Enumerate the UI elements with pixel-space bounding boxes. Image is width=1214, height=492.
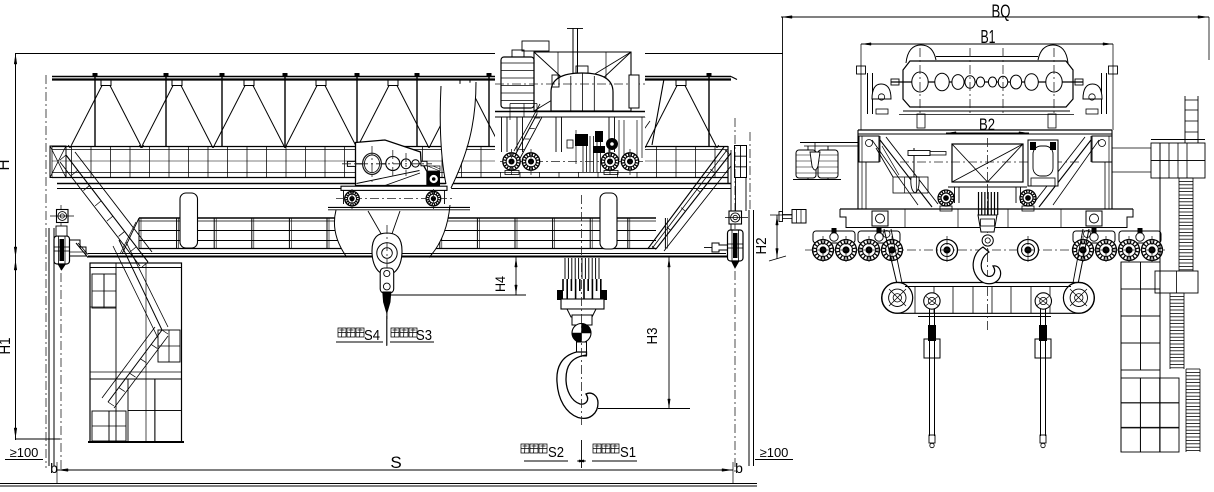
svg-text:H1: H1 <box>0 337 14 354</box>
svg-text:S3: S3 <box>416 327 432 344</box>
svg-text:S1: S1 <box>620 444 636 461</box>
svg-text:≥100: ≥100 <box>760 445 789 460</box>
svg-text:H2: H2 <box>753 238 770 255</box>
svg-text:S: S <box>390 453 401 472</box>
svg-text:BQ: BQ <box>992 2 1011 22</box>
svg-text:b: b <box>735 460 743 476</box>
svg-text:H: H <box>0 160 13 171</box>
svg-text:H3: H3 <box>644 328 661 345</box>
svg-text:S4: S4 <box>364 327 380 344</box>
svg-text:≥100: ≥100 <box>10 445 39 460</box>
svg-text:B2: B2 <box>979 115 995 134</box>
svg-text:B1: B1 <box>981 27 996 47</box>
svg-text:S2: S2 <box>548 444 564 461</box>
svg-text:H4: H4 <box>492 276 508 292</box>
